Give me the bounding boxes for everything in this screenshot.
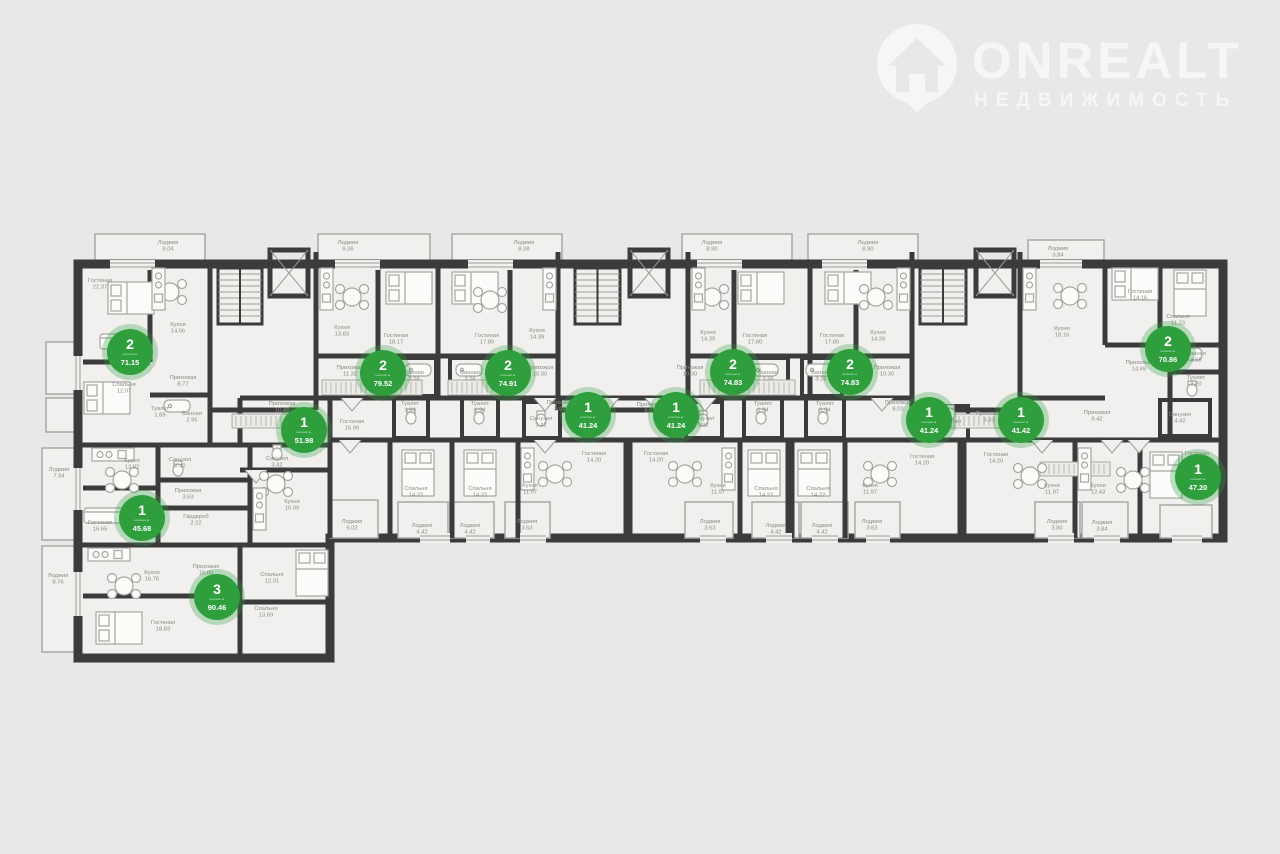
badge-unit-label: комнаты bbox=[1160, 349, 1175, 353]
room-label: Кухня14.39 bbox=[870, 330, 886, 342]
badge-unit-label: комнаты bbox=[1190, 477, 1205, 481]
apartment-badge[interactable]: 3комнаты90.46 bbox=[189, 569, 245, 625]
window bbox=[1048, 533, 1074, 543]
badge-unit-label: комнаты bbox=[209, 597, 224, 601]
badge-room-count: 1 bbox=[1017, 404, 1025, 420]
floorplan-svg: ONREALT НЕДВИЖИМОСТЬ Лоджия9.04Лоджия9.3… bbox=[0, 0, 1280, 854]
badge-unit-label: комнаты bbox=[375, 373, 390, 377]
furniture-bedH bbox=[738, 272, 784, 304]
badge-room-count: 1 bbox=[672, 399, 680, 415]
furniture-bedV bbox=[1174, 270, 1206, 316]
badge-room-count: 2 bbox=[1164, 333, 1172, 349]
room-label: Кухня16.76 bbox=[144, 570, 160, 582]
room-label: Кухня14.39 bbox=[700, 330, 716, 342]
balcony bbox=[46, 398, 78, 432]
badge-room-count: 2 bbox=[729, 356, 737, 372]
apartment-badge[interactable]: 2комнаты79.52 bbox=[355, 345, 411, 401]
floorplan-page: ONREALT НЕДВИЖИМОСТЬ Лоджия9.04Лоджия9.3… bbox=[0, 0, 1280, 854]
apartment-badge[interactable]: 1комнаты41.24 bbox=[560, 387, 616, 443]
window bbox=[1172, 533, 1202, 543]
badge-unit-label: комнаты bbox=[725, 372, 740, 376]
badge-unit-label: комнаты bbox=[921, 420, 936, 424]
furniture-bedH bbox=[386, 272, 432, 304]
furniture-kitV bbox=[1078, 448, 1091, 490]
apartment-badge[interactable]: 2комнаты74.91 bbox=[480, 345, 536, 401]
badge-unit-label: комнаты bbox=[122, 352, 137, 356]
apartment-badge[interactable]: 2комнаты74.83 bbox=[705, 344, 761, 400]
window bbox=[700, 533, 726, 543]
furniture-kitV bbox=[152, 268, 165, 310]
badge-area: 74.83 bbox=[724, 378, 743, 387]
badge-room-count: 1 bbox=[925, 404, 933, 420]
furniture-kitV bbox=[543, 268, 556, 310]
apartment-badge[interactable]: 2комнаты74.83 bbox=[822, 344, 878, 400]
furniture-bedH bbox=[108, 282, 154, 314]
badge-unit-label: комнаты bbox=[1013, 420, 1028, 424]
furniture-kitV bbox=[320, 268, 333, 310]
apartment-badge[interactable]: 1комнаты47.20 bbox=[1170, 449, 1226, 505]
room-label: Кухня11.97 bbox=[710, 483, 726, 495]
apartment-badge[interactable]: 1комнаты41.24 bbox=[901, 392, 957, 448]
badge-unit-label: комнаты bbox=[500, 373, 515, 377]
room-label: Кухня13.82 bbox=[124, 458, 140, 470]
badge-area: 41.24 bbox=[920, 426, 939, 435]
room-label: Кухня11.97 bbox=[522, 483, 538, 495]
room-label: Кухня12.43 bbox=[1090, 483, 1106, 495]
badge-room-count: 1 bbox=[584, 399, 592, 415]
apartment-badge[interactable]: 1комнаты45.68 bbox=[114, 490, 170, 546]
apartment-badge[interactable]: 1комнаты41.24 bbox=[648, 387, 704, 443]
badge-room-count: 1 bbox=[300, 414, 308, 430]
room-label: Кухня14.06 bbox=[170, 322, 186, 334]
badge-area: 90.46 bbox=[208, 603, 227, 612]
furniture-kitV bbox=[253, 488, 266, 530]
window bbox=[520, 533, 546, 543]
window bbox=[822, 260, 867, 270]
badge-unit-label: комнаты bbox=[580, 415, 595, 419]
furniture-kitV bbox=[692, 268, 705, 310]
window bbox=[335, 260, 380, 270]
badge-area: 79.52 bbox=[374, 379, 393, 388]
badge-room-count: 2 bbox=[504, 357, 512, 373]
logo-brand-text: ONREALT bbox=[972, 32, 1243, 89]
window bbox=[73, 468, 83, 510]
furniture-kitV bbox=[897, 268, 910, 310]
room-label: Кухня15.09 bbox=[284, 499, 300, 511]
apartment-badge[interactable]: 2комнаты70.86 bbox=[1140, 321, 1196, 377]
badge-unit-label: комнаты bbox=[668, 415, 683, 419]
apartment-badge[interactable]: 2комнаты71.15 bbox=[102, 324, 158, 380]
room-label: Кухня13.83 bbox=[334, 325, 350, 337]
apartment-badge[interactable]: 1комнаты41.42 bbox=[993, 392, 1049, 448]
furniture-kitV bbox=[1023, 268, 1036, 310]
badge-room-count: 2 bbox=[126, 336, 134, 352]
badge-area: 74.91 bbox=[499, 379, 518, 388]
room-label: Кухня18.16 bbox=[1054, 326, 1070, 338]
badge-room-count: 2 bbox=[846, 356, 854, 372]
badge-area: 70.86 bbox=[1159, 355, 1178, 364]
window bbox=[866, 533, 890, 543]
badge-room-count: 3 bbox=[213, 581, 221, 597]
onrealt-logo: ONREALT НЕДВИЖИМОСТЬ bbox=[877, 24, 1243, 112]
badge-room-count: 2 bbox=[379, 357, 387, 373]
furniture-bedH bbox=[96, 612, 142, 644]
room-label: Кухня11.97 bbox=[1044, 483, 1060, 495]
badge-area: 47.20 bbox=[1189, 483, 1208, 492]
badge-area: 45.68 bbox=[133, 524, 152, 533]
badge-room-count: 1 bbox=[138, 502, 146, 518]
badge-unit-label: комнаты bbox=[842, 372, 857, 376]
window bbox=[73, 572, 83, 616]
room-label: Кухня11.97 bbox=[862, 483, 878, 495]
balcony bbox=[42, 546, 78, 652]
badge-area: 41.24 bbox=[667, 421, 686, 430]
window bbox=[110, 260, 155, 270]
badge-area: 51.98 bbox=[295, 436, 314, 445]
window bbox=[1094, 533, 1120, 543]
badge-room-count: 1 bbox=[1194, 461, 1202, 477]
apartment-badge[interactable]: 1комнаты51.98 bbox=[276, 402, 332, 458]
room-label: Кухня14.39 bbox=[529, 328, 545, 340]
window bbox=[1040, 260, 1082, 270]
badge-area: 41.42 bbox=[1012, 426, 1031, 435]
badge-area: 74.83 bbox=[841, 378, 860, 387]
corridor-mat bbox=[1040, 462, 1110, 476]
balcony bbox=[42, 448, 78, 540]
badge-unit-label: комнаты bbox=[296, 430, 311, 434]
furniture-kitH bbox=[88, 548, 130, 561]
window bbox=[73, 356, 83, 390]
window bbox=[468, 260, 513, 270]
badge-area: 41.24 bbox=[579, 421, 598, 430]
badge-area: 71.15 bbox=[121, 358, 140, 367]
badge-unit-label: комнаты bbox=[134, 518, 149, 522]
furniture-bedV bbox=[296, 550, 328, 596]
logo-tagline-text: НЕДВИЖИМОСТЬ bbox=[974, 90, 1237, 111]
